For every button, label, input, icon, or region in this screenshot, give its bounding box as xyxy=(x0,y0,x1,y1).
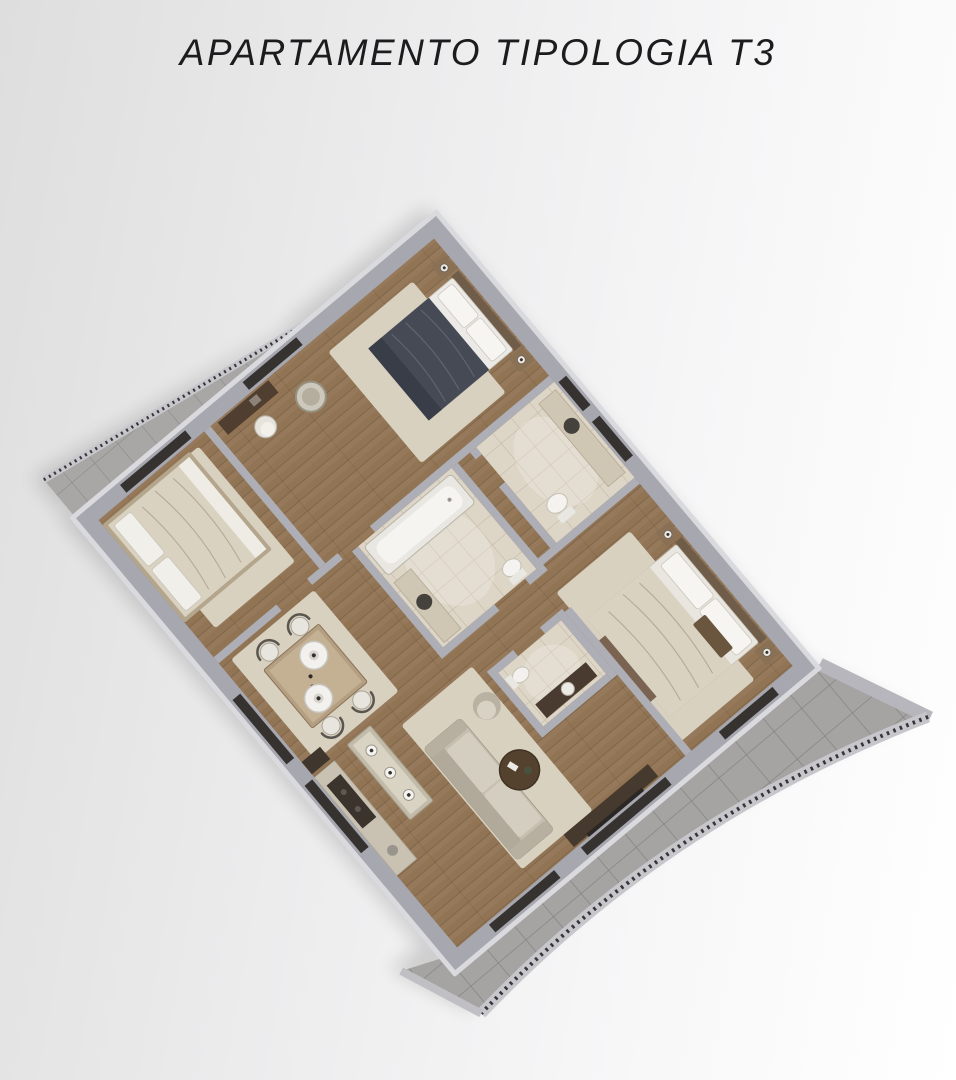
apartment-scene xyxy=(0,135,930,1080)
floor-plan-canvas xyxy=(0,0,956,1080)
